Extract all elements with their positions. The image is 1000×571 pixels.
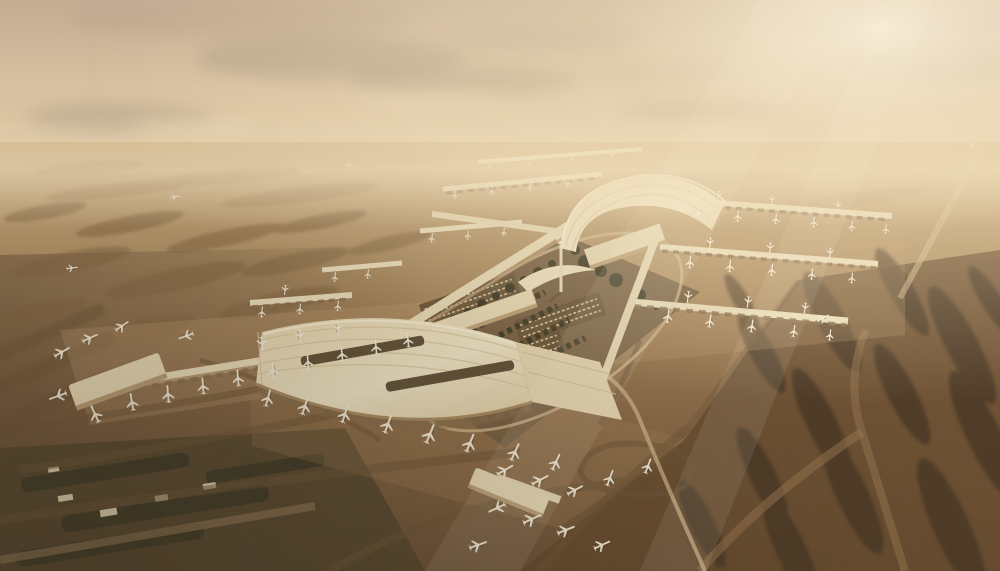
vignette	[0, 0, 1000, 571]
airport-aerial-render	[0, 0, 1000, 571]
